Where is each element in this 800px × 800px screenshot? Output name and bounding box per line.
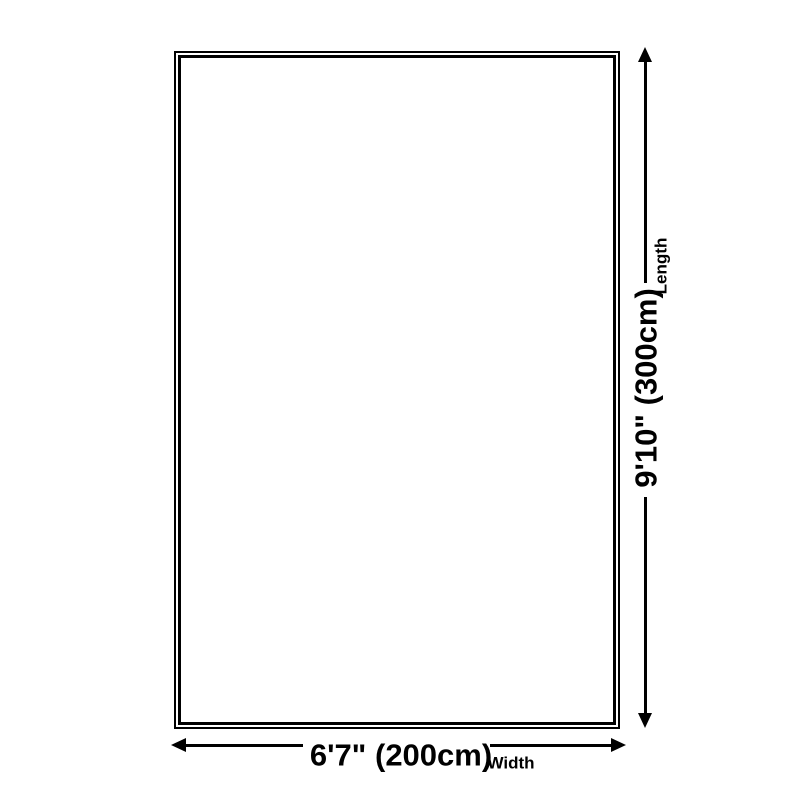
length-caption: Length	[653, 238, 670, 295]
length-dimension-line-top	[644, 60, 647, 283]
width-dimension-line-left	[186, 744, 303, 747]
arrow-down-icon	[638, 713, 652, 728]
rug-size-diagram: Length 9'10" (300cm) 6'7" (200cm) Width	[0, 0, 800, 800]
rug-outline-inner	[178, 55, 616, 725]
arrow-right-icon	[611, 738, 626, 752]
arrow-left-icon	[171, 738, 186, 752]
length-dimension-line-bottom	[644, 497, 647, 714]
width-value: 6'7" (200cm)	[310, 740, 492, 771]
rug-outline	[174, 51, 620, 729]
length-value: 9'10" (300cm)	[631, 288, 662, 488]
width-caption: Width	[487, 755, 534, 772]
width-dimension-line-right	[490, 744, 612, 747]
